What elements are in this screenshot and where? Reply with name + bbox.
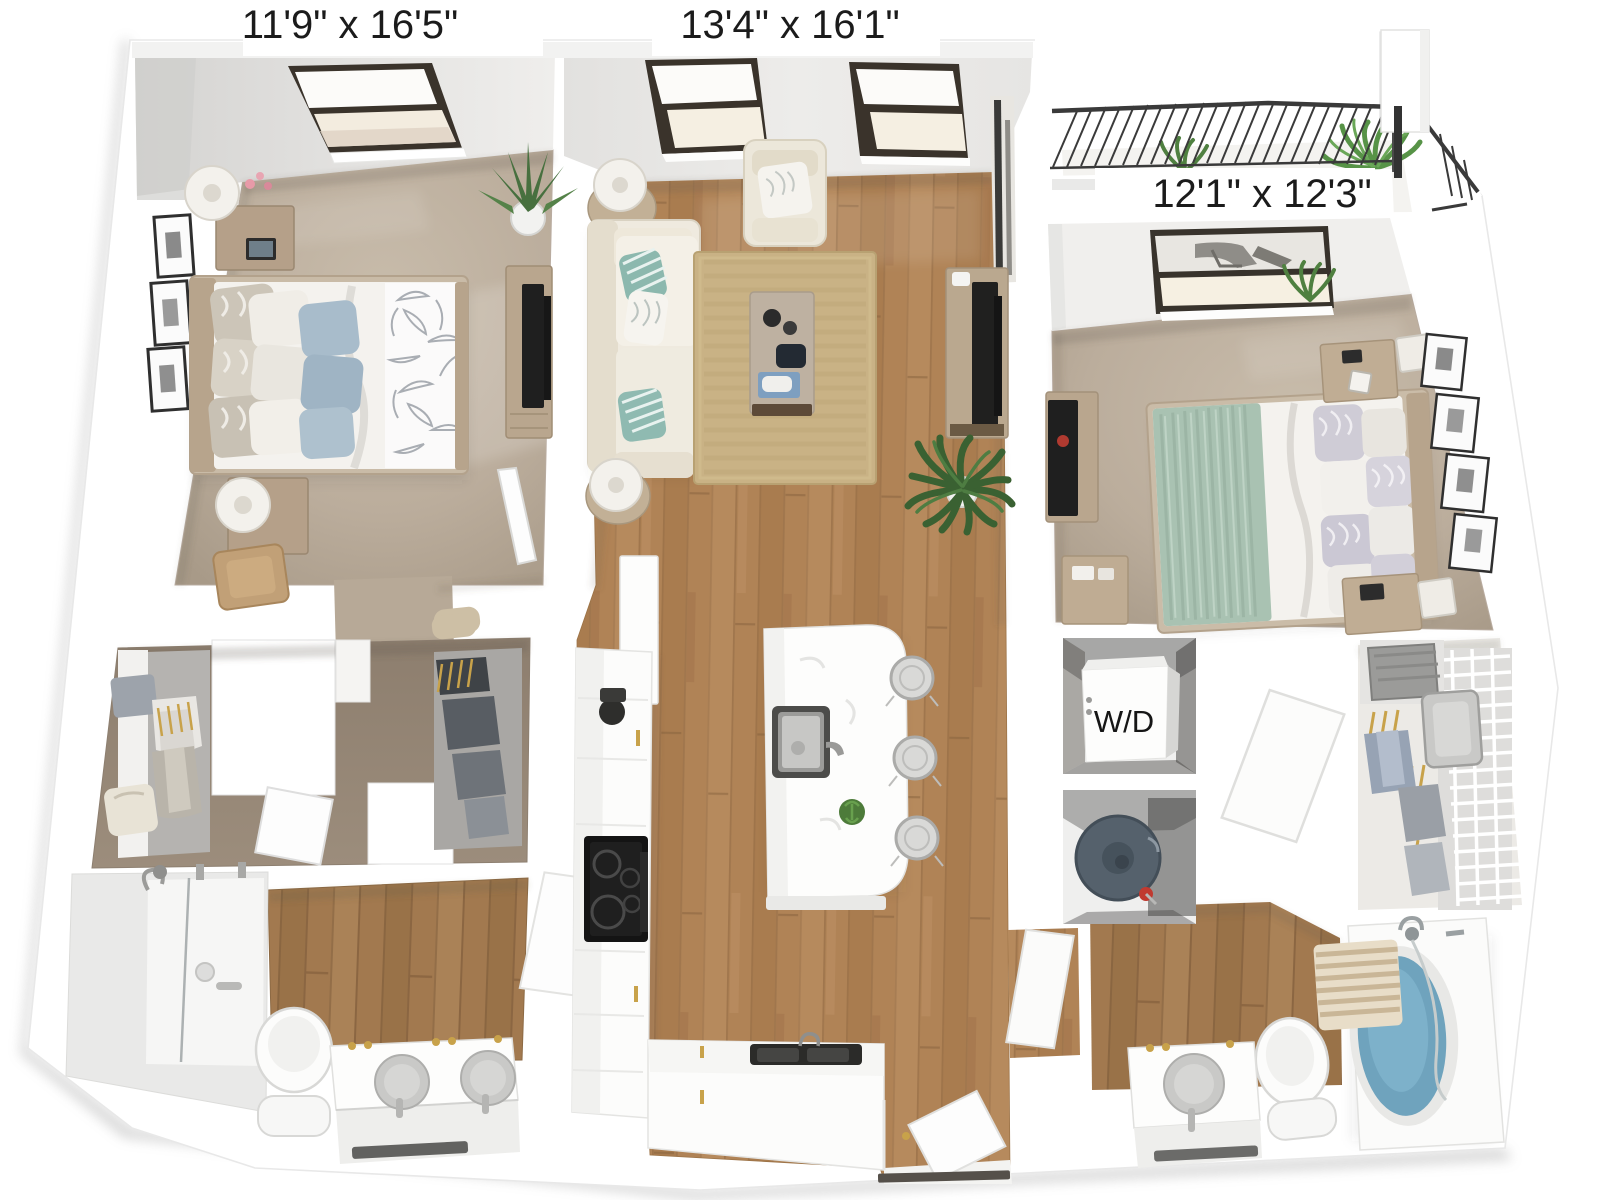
svg-text:11'9" x 16'5": 11'9" x 16'5" [242, 3, 458, 47]
svg-text:13'4" x 16'1": 13'4" x 16'1" [680, 3, 899, 47]
svg-text:12'1" x 12'3": 12'1" x 12'3" [1152, 172, 1371, 216]
svg-text:W/D: W/D [1094, 704, 1154, 739]
